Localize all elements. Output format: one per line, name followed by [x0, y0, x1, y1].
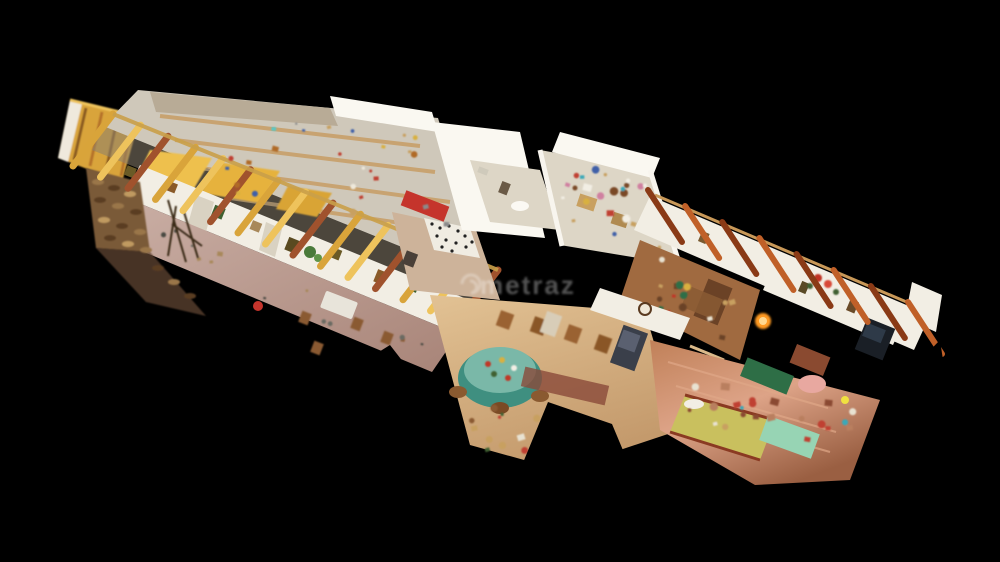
- clutter-object: [592, 166, 600, 174]
- clutter-object: [621, 187, 625, 191]
- lamp-flare-core: [759, 317, 767, 325]
- clutter-object: [818, 420, 826, 428]
- clutter-object: [824, 399, 832, 406]
- clutter-object: [710, 402, 718, 410]
- clutter-object: [721, 383, 731, 391]
- clutter-object: [374, 176, 379, 180]
- clutter-object: [469, 418, 474, 423]
- red-stool: [253, 301, 263, 311]
- clutter-object: [676, 281, 684, 289]
- clutter-object: [624, 183, 629, 188]
- clutter-object: [400, 335, 405, 340]
- clutter-object: [252, 191, 258, 197]
- watermark-text: metraz: [480, 270, 576, 300]
- clutter-object: [444, 222, 450, 227]
- clutter-object: [722, 424, 728, 430]
- clutter-object: [659, 257, 665, 263]
- clutter-object: [225, 167, 229, 170]
- clutter-object: [234, 182, 240, 188]
- clutter-object: [305, 289, 308, 292]
- clutter-object: [692, 383, 699, 390]
- clutter-object: [500, 413, 503, 416]
- clutter-object: [688, 408, 692, 412]
- clutter-object: [499, 442, 506, 449]
- clutter-object: [597, 192, 604, 199]
- clutter-object: [637, 183, 644, 190]
- clutter-object: [295, 123, 297, 125]
- clutter-object: [369, 169, 372, 172]
- clutter-object: [580, 175, 585, 179]
- clutter-object: [825, 426, 830, 430]
- clutter-object: [799, 416, 805, 422]
- clutter-object: [643, 184, 647, 188]
- clutter-object: [322, 319, 327, 324]
- wall-clock: [639, 303, 651, 315]
- clutter-object: [328, 321, 333, 326]
- clutter-object: [657, 296, 662, 301]
- clutter-object: [161, 232, 166, 237]
- clutter-object: [490, 405, 497, 412]
- wall-plant: [304, 246, 316, 258]
- clutter-object: [362, 166, 365, 169]
- clutter-object: [498, 416, 501, 419]
- clutter-object: [411, 151, 418, 158]
- clutter-object: [604, 173, 607, 176]
- clutter-object: [740, 406, 744, 410]
- clutter-object: [573, 185, 578, 190]
- clutter-object: [607, 210, 614, 216]
- clutter-object: [849, 408, 856, 415]
- clutter-object: [574, 173, 580, 179]
- clutter-object: [228, 156, 233, 161]
- clutter-object: [351, 129, 355, 133]
- clutter-object: [338, 152, 342, 156]
- pink-chair: [798, 375, 826, 393]
- clutter-object: [533, 415, 540, 422]
- clutter-object: [680, 292, 687, 299]
- clutter-object: [683, 283, 690, 290]
- clutter-object: [217, 251, 223, 256]
- clutter-object: [846, 425, 853, 431]
- clutter-object: [672, 294, 676, 298]
- clutter-object: [679, 303, 687, 311]
- watermark: metraz: [462, 270, 576, 300]
- clutter-object: [209, 260, 213, 263]
- clutter-object: [572, 219, 576, 222]
- bathtub: [511, 201, 529, 211]
- clutter-object: [612, 232, 616, 236]
- clutter-object: [583, 198, 590, 205]
- pillow: [684, 399, 704, 409]
- clutter-object: [561, 196, 565, 199]
- clutter-object: [236, 191, 240, 195]
- clutter-object: [842, 419, 848, 425]
- clutter-object: [408, 150, 412, 153]
- table-chair: [449, 386, 467, 398]
- viewer-canvas[interactable]: metraz: [0, 0, 1000, 562]
- clutter-object: [722, 300, 727, 305]
- clutter-object: [486, 436, 493, 443]
- clutter-object: [740, 412, 745, 417]
- clutter-object: [610, 187, 619, 196]
- clutter-object: [622, 214, 630, 222]
- clutter-object: [350, 209, 357, 216]
- clutter-object: [753, 414, 759, 419]
- clutter-object: [403, 134, 406, 137]
- clutter-object: [246, 160, 252, 165]
- dollhouse-3d-view[interactable]: metraz: [0, 0, 1000, 562]
- clutter-object: [626, 179, 630, 183]
- clutter-object: [413, 135, 418, 140]
- clutter-object: [749, 397, 756, 404]
- clutter-object: [350, 184, 356, 190]
- clutter-object: [271, 127, 276, 131]
- yellow-object: [841, 396, 849, 404]
